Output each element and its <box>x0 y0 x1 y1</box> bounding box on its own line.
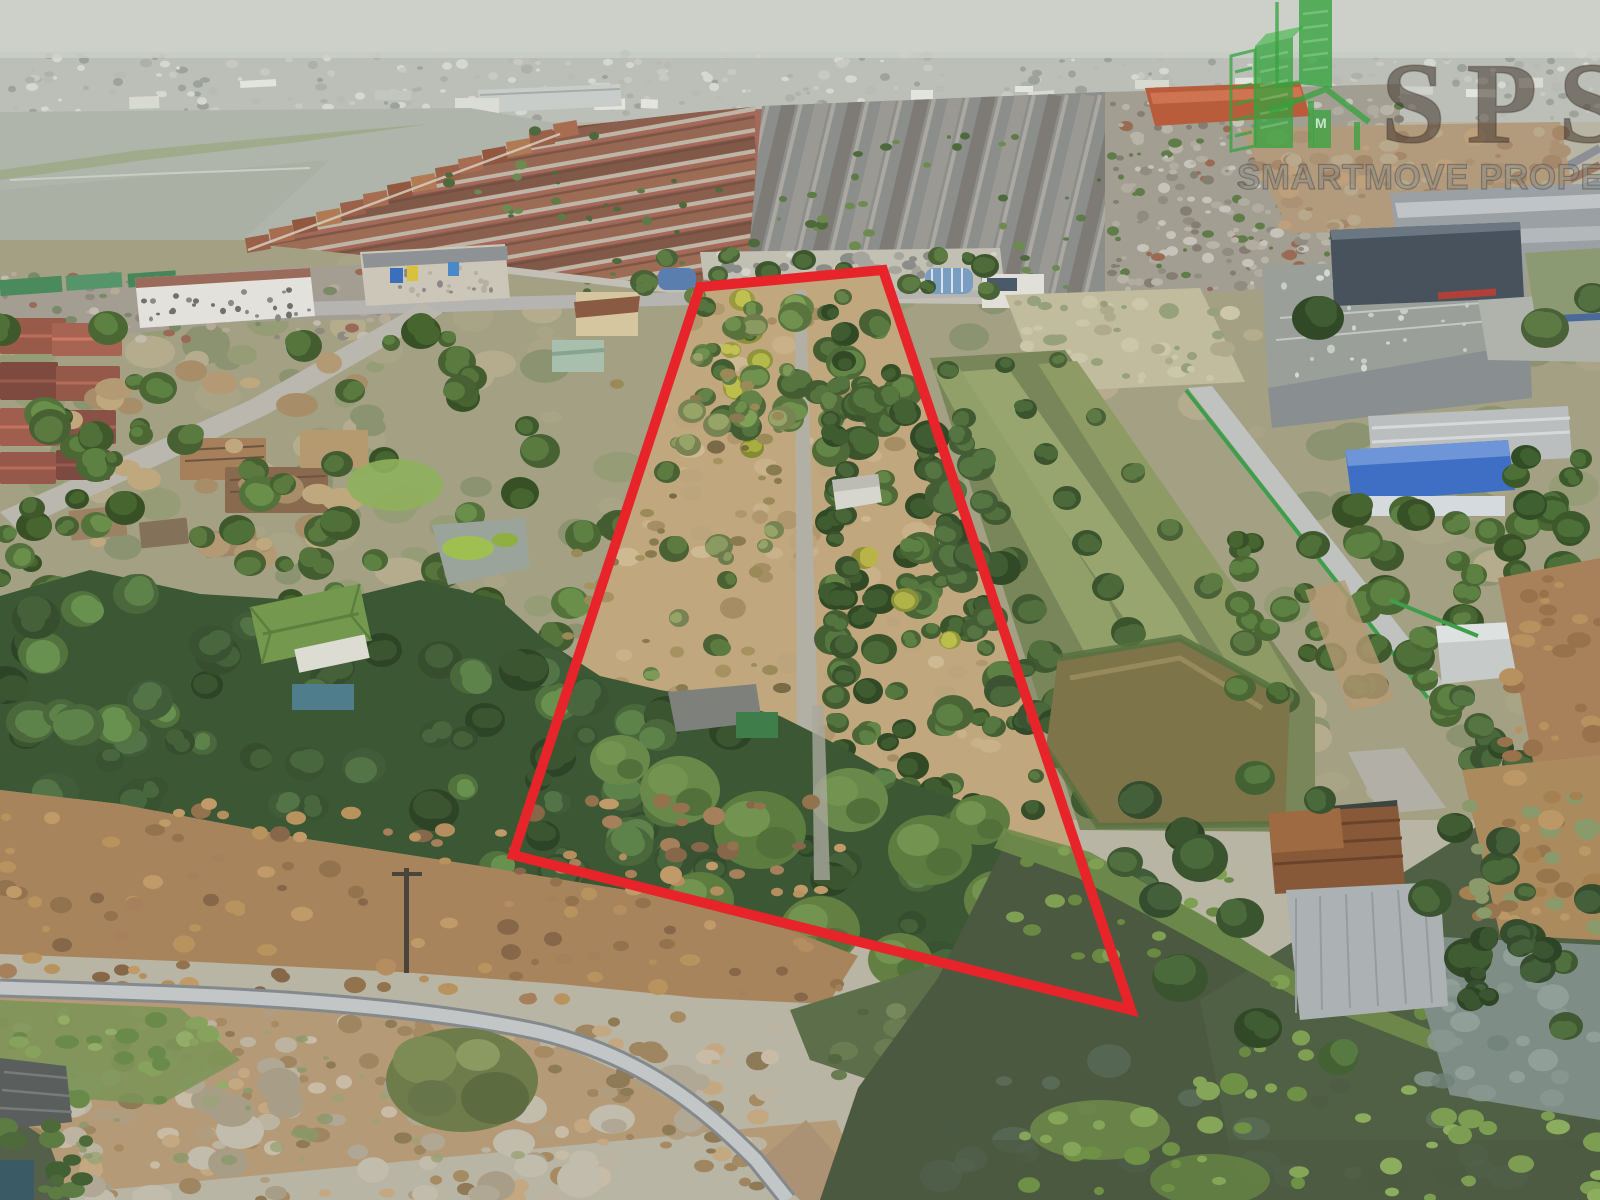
svg-text:M: M <box>1315 115 1327 131</box>
svg-text:SMARTMOVE PROPERTY: SMARTMOVE PROPERTY <box>1237 158 1600 197</box>
svg-text:SPS: SPS <box>1381 40 1600 168</box>
